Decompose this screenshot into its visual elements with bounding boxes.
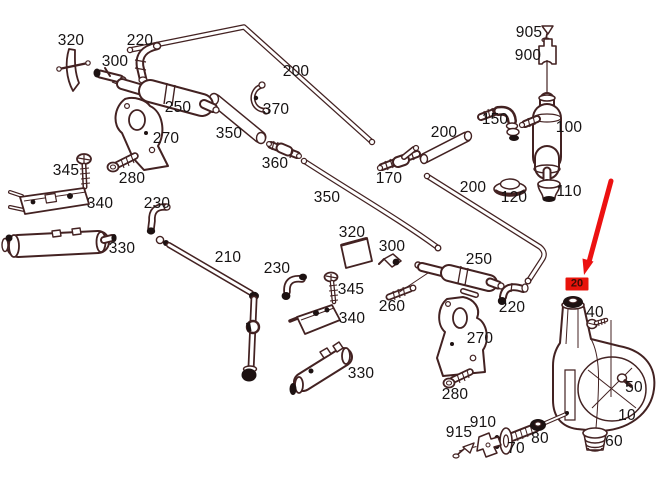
cylinder-330-left-part <box>2 228 117 257</box>
washer-20-part <box>563 296 583 308</box>
part-label-170: 170 <box>376 170 402 188</box>
nozzle-915-part <box>453 443 474 458</box>
part-label-900: 900 <box>515 47 541 65</box>
part-label-905: 905 <box>516 24 542 42</box>
part-label-150: 150 <box>482 111 508 129</box>
part-label-110: 110 <box>556 183 581 201</box>
part-label-70: 70 <box>507 440 525 458</box>
part-label-210: 210 <box>215 249 241 267</box>
part-label-350: 350 <box>216 125 242 143</box>
part-label-60: 60 <box>605 433 623 451</box>
part-label-270: 270 <box>467 330 493 348</box>
part-label-300: 300 <box>379 238 405 256</box>
part-label-10: 10 <box>618 407 636 425</box>
part-label-200: 200 <box>283 63 309 81</box>
part-label-915: 915 <box>446 424 472 442</box>
part-label-230: 230 <box>264 260 290 278</box>
pump-330-mid-part <box>290 342 351 395</box>
plug-60-part <box>583 428 607 451</box>
part-label-340: 340 <box>87 195 113 213</box>
highlighted-part-label: 20 <box>566 278 589 291</box>
diagram-linework <box>0 0 662 493</box>
tconnector-170-part <box>378 146 419 171</box>
part-label-270: 270 <box>153 130 179 148</box>
rod-210-part <box>156 236 259 381</box>
part-label-200: 200 <box>431 124 457 142</box>
clip-910-part <box>477 433 501 457</box>
part-label-50: 50 <box>625 379 643 397</box>
part-label-320: 320 <box>339 224 365 242</box>
part-label-120: 120 <box>501 189 527 207</box>
part-label-345: 345 <box>53 162 79 180</box>
screw-345-mid-part <box>325 273 339 303</box>
highlight-arrow <box>583 181 612 275</box>
part-label-330: 330 <box>348 365 374 383</box>
part-label-360: 360 <box>262 155 288 173</box>
part-label-280: 280 <box>119 170 145 188</box>
part-label-80: 80 <box>531 430 549 448</box>
part-label-200: 200 <box>460 179 486 197</box>
part-label-300: 300 <box>102 53 128 71</box>
part-label-345: 345 <box>338 281 364 299</box>
part-label-320: 320 <box>58 32 84 50</box>
part-label-910: 910 <box>470 414 496 432</box>
part-label-220: 220 <box>127 32 153 50</box>
rail-340-left-part <box>10 188 89 214</box>
part-label-350: 350 <box>314 189 340 207</box>
part-label-230: 230 <box>144 195 170 213</box>
pump-100-part <box>520 95 562 185</box>
part-label-260: 260 <box>379 298 405 316</box>
plate-320-mid-part <box>341 238 372 268</box>
part-label-280: 280 <box>442 386 468 404</box>
part-label-330: 330 <box>109 240 135 258</box>
part-label-250: 250 <box>165 99 191 117</box>
highlight-arrow-line <box>589 181 611 262</box>
part-label-370: 370 <box>263 101 289 119</box>
part-label-220: 220 <box>499 299 525 317</box>
part-label-340: 340 <box>339 310 365 328</box>
bracket-320-part <box>57 49 90 91</box>
part-label-250: 250 <box>466 251 492 269</box>
part-label-100: 100 <box>556 119 582 137</box>
parts-diagram: 3202203002002503703502703603452801702001… <box>0 0 662 493</box>
part-label-40: 40 <box>586 304 604 322</box>
rail-340-mid-part <box>290 305 340 334</box>
fitting-260-part <box>389 273 428 300</box>
